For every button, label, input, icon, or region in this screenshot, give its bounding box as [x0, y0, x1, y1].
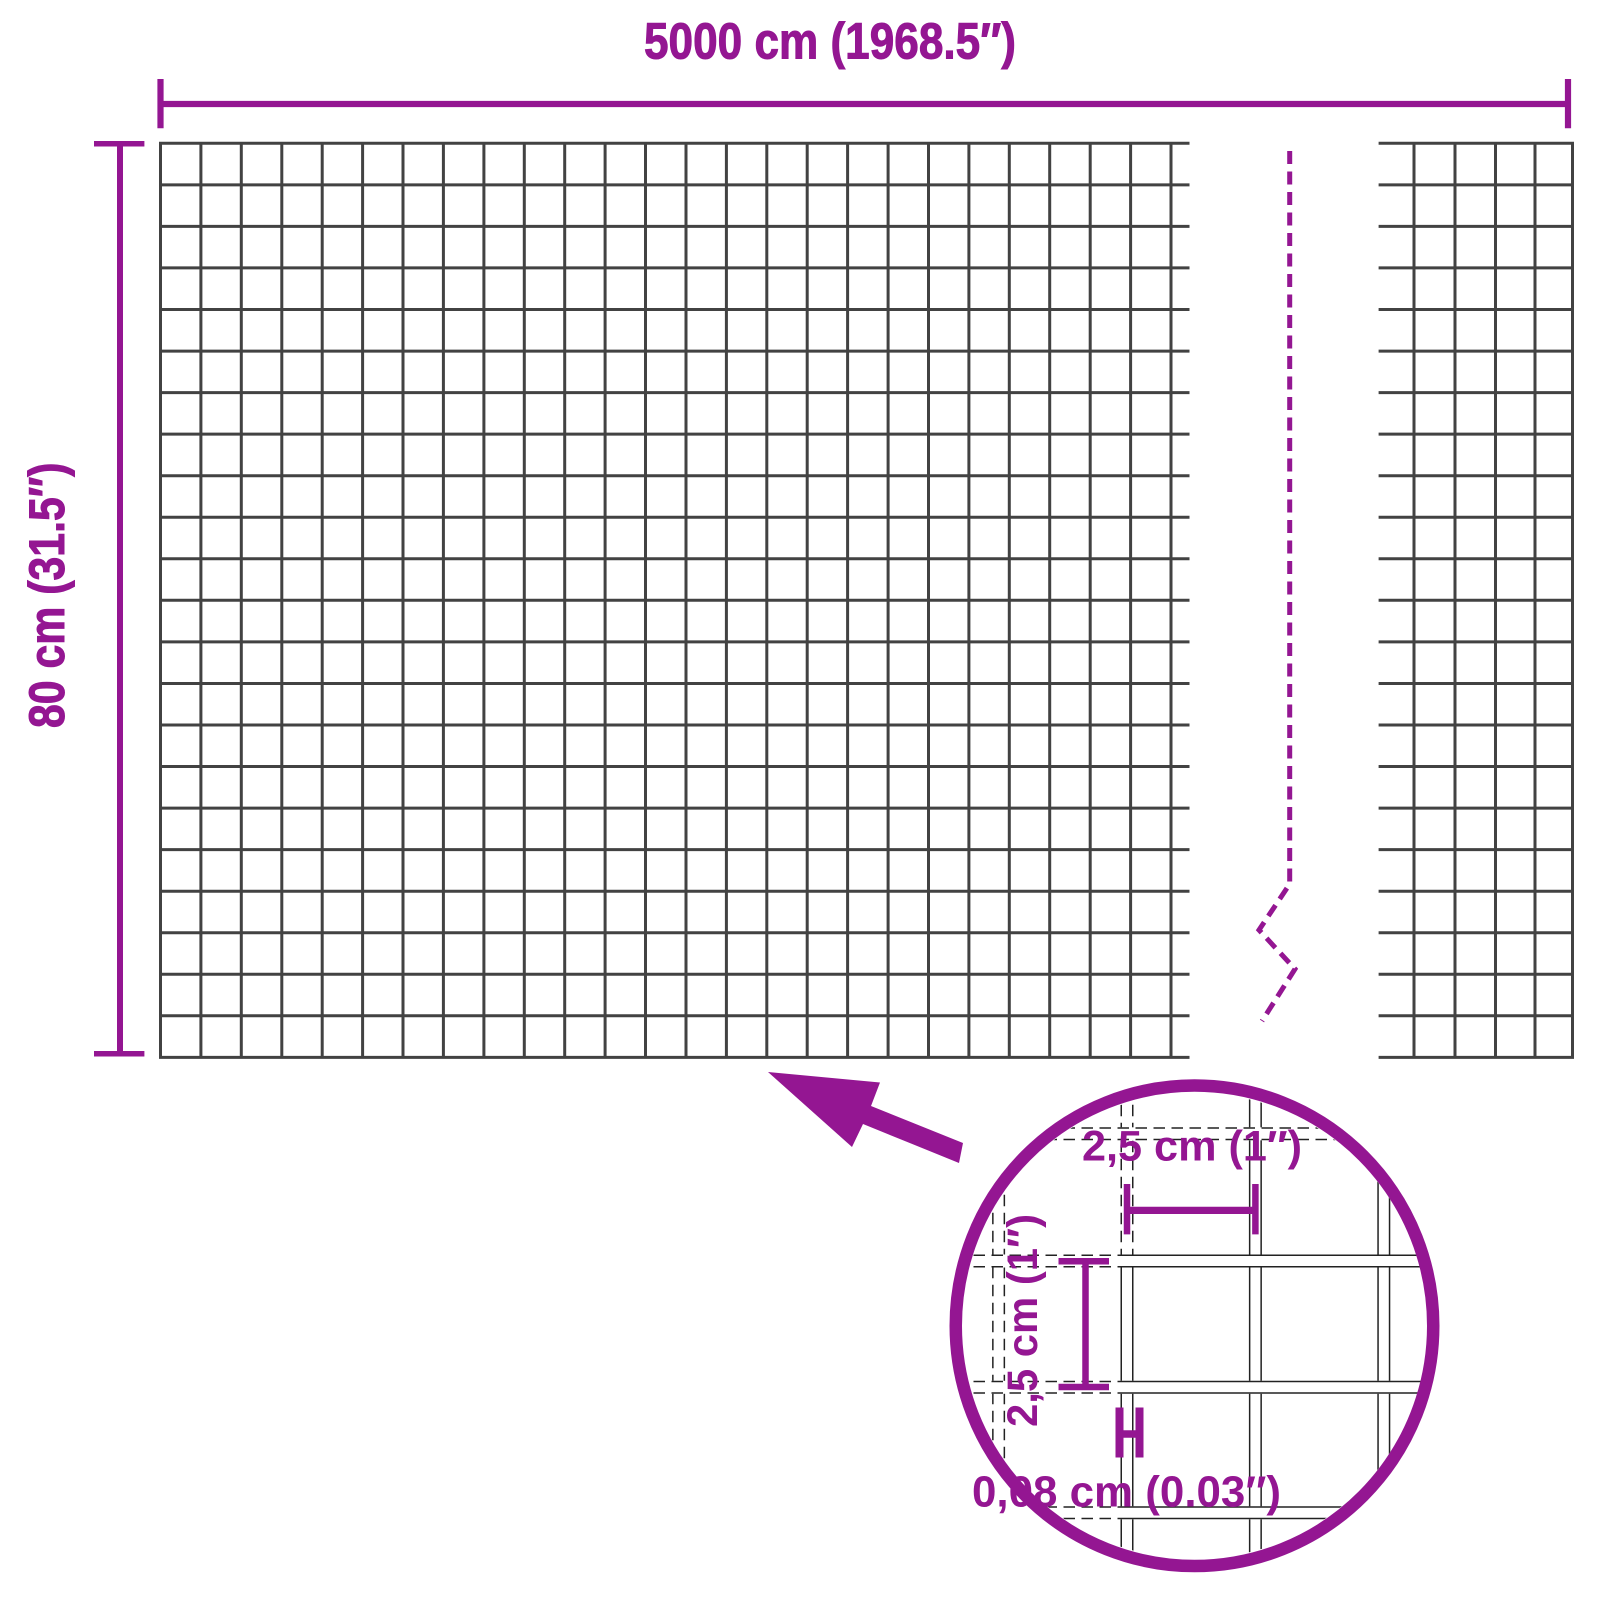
svg-text:5000 cm (1968.5″): 5000 cm (1968.5″)	[644, 13, 1016, 70]
svg-text:0,08 cm (0.03″): 0,08 cm (0.03″)	[972, 1468, 1281, 1517]
svg-text:2,5 cm (1″): 2,5 cm (1″)	[999, 1214, 1047, 1427]
svg-text:2,5 cm (1″): 2,5 cm (1″)	[1082, 1122, 1302, 1170]
svg-text:80 cm (31.5″): 80 cm (31.5″)	[19, 463, 75, 729]
